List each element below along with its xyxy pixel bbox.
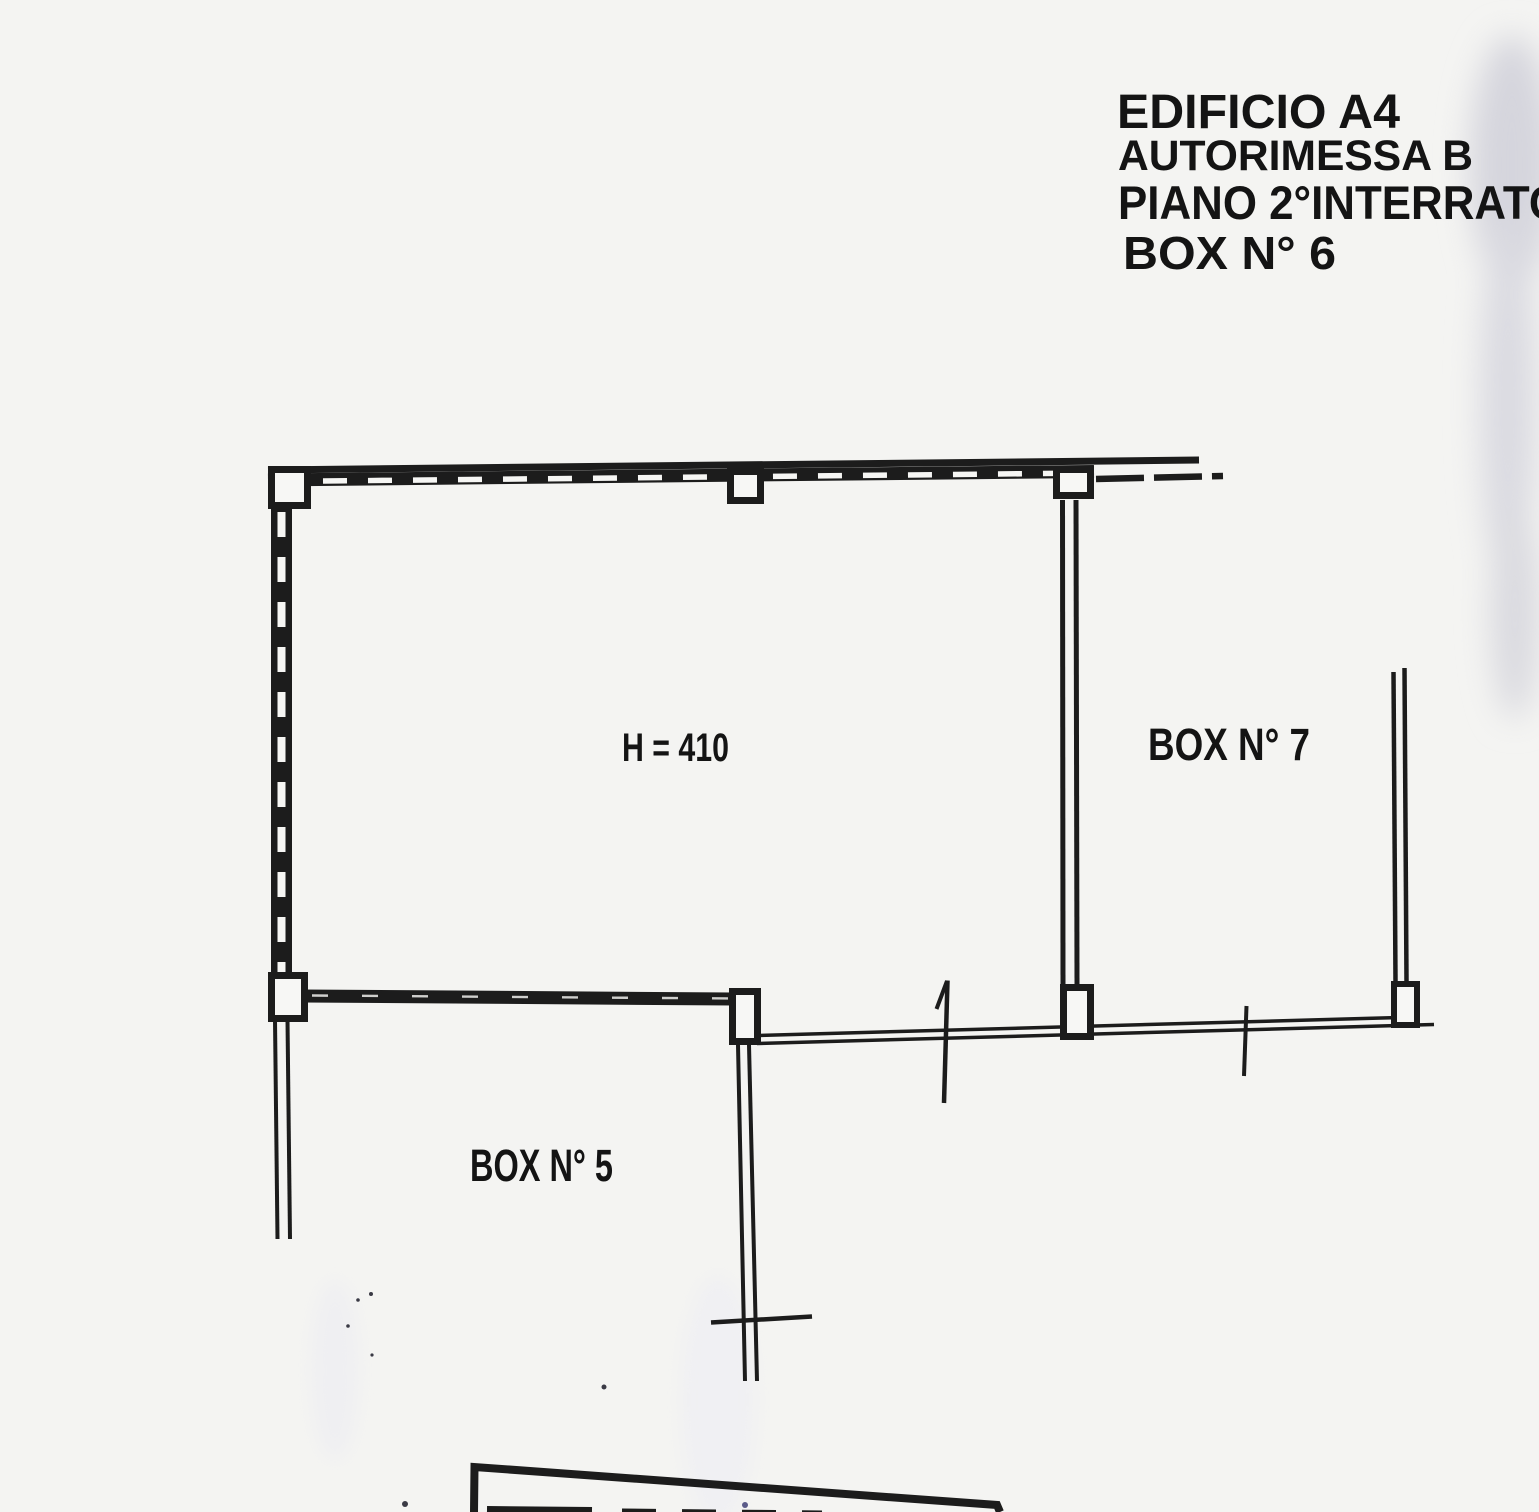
svg-text:AUTORIMESSA B: AUTORIMESSA B: [1118, 132, 1473, 180]
svg-text:BOX N° 7: BOX N° 7: [1148, 719, 1310, 770]
svg-text:PIANO 2°INTERRATO: PIANO 2°INTERRATO: [1118, 176, 1539, 229]
svg-text:BOX N° 5: BOX N° 5: [470, 1140, 613, 1191]
svg-text:BOX N° 6: BOX N° 6: [1123, 227, 1336, 279]
svg-text:H = 410: H = 410: [622, 726, 729, 770]
